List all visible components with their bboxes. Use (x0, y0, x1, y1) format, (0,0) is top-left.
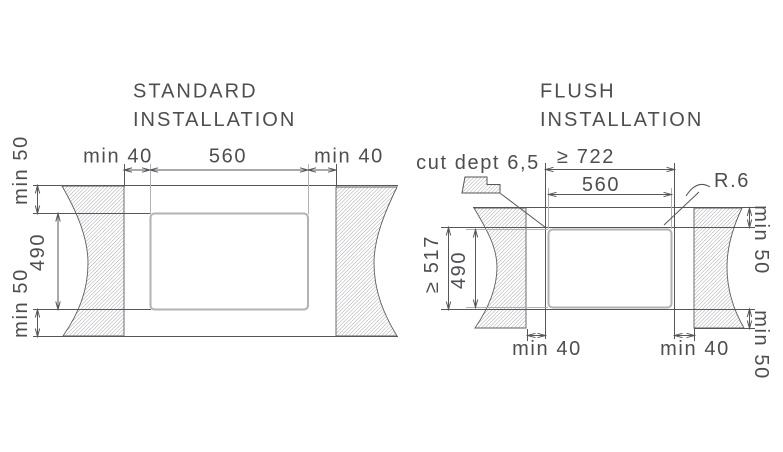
dim-label-corner-radius: R.6 (714, 170, 750, 192)
cut-depth-profile-icon (462, 177, 500, 193)
dim-label-min40-left: min 40 (83, 146, 153, 168)
installation-diagram: STANDARD INSTALLATION (0, 0, 783, 452)
dim-label-490: 490 (448, 251, 470, 289)
worktop-hatch-right (336, 187, 397, 336)
flush-installation-diagram: FLUSH INSTALLATION (416, 81, 772, 380)
standard-installation-diagram: STANDARD INSTALLATION (10, 81, 398, 338)
dim-label-560: 560 (209, 146, 247, 168)
flush-title-line2: INSTALLATION (540, 109, 703, 131)
dim-label-min50-right-bottom: min 50 (750, 310, 772, 380)
standard-title-line1: STANDARD (133, 81, 258, 103)
dim-label-490: 490 (27, 233, 49, 271)
top-dimension-lines (124, 164, 337, 214)
worktop-hatch-left (62, 186, 124, 336)
dim-label-min40-bottom-left: min 40 (512, 338, 582, 360)
cutout-rectangle (549, 230, 672, 308)
dim-label-min40-right: min 40 (314, 146, 384, 168)
dim-label-min40-bottom-right: min 40 (660, 338, 730, 360)
dim-label-min50-bottom: min 50 (10, 268, 32, 338)
installation-diagram-page: STANDARD INSTALLATION (0, 0, 783, 452)
dim-label-recess-depth: ≥ 517 (421, 235, 443, 293)
standard-title-line2: INSTALLATION (133, 109, 296, 131)
flush-title-line1: FLUSH (540, 81, 616, 103)
dim-label-560: 560 (582, 174, 620, 196)
cutout-rectangle (151, 214, 309, 310)
dim-label-cut-depth: cut dept 6,5 (416, 152, 540, 174)
dim-label-recess-width: ≥ 722 (557, 146, 615, 168)
dim-label-min50-right-top: min 50 (750, 205, 772, 275)
dim-label-min50-top: min 50 (10, 135, 32, 205)
